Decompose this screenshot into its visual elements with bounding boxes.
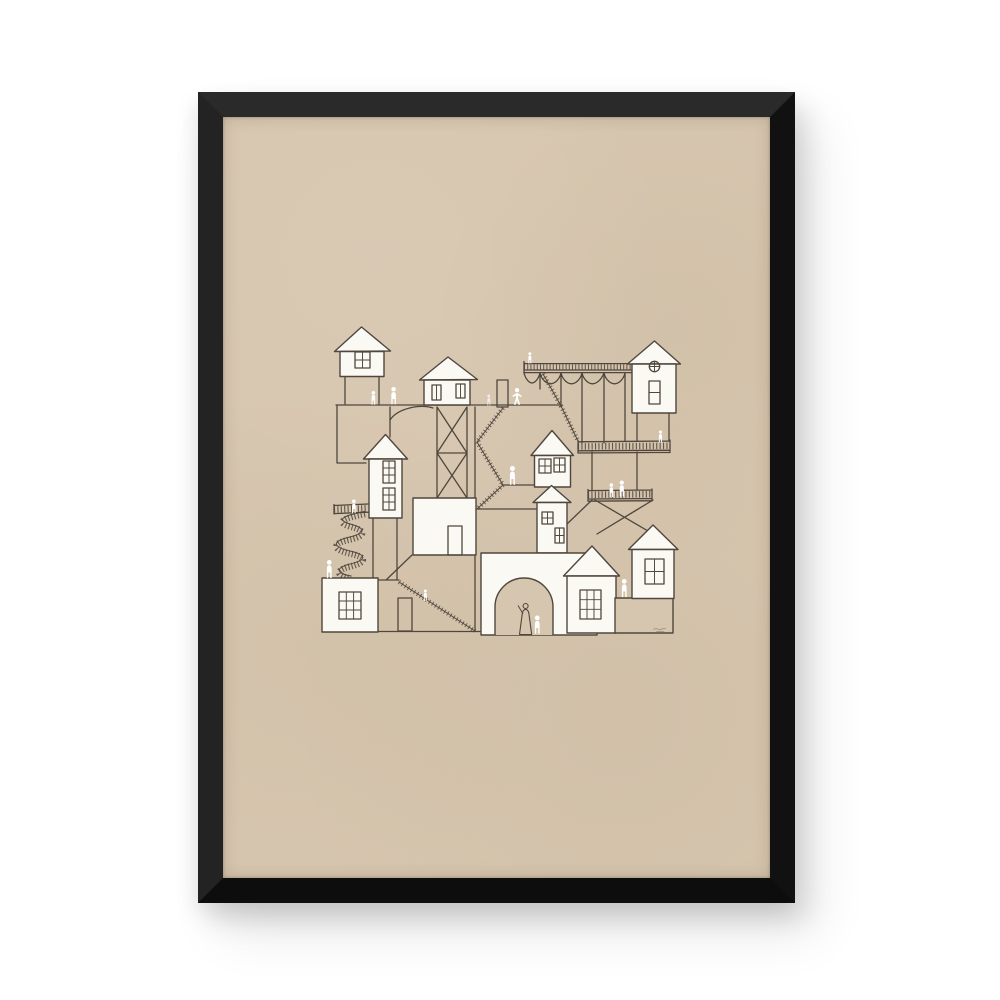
spiral-staircase [336,512,365,579]
poster-print: Framed poster — hand-drawn village of st… [223,117,770,878]
arched-viaduct [524,362,632,444]
figure [622,579,627,597]
square-house-bottom-left [322,578,378,632]
figure [487,395,490,406]
house-top-left-on-stilts [335,327,391,377]
poster-frame: Framed poster — hand-drawn village of st… [198,92,795,903]
village-line-art: Framed poster — hand-drawn village of st… [223,117,770,878]
figure [620,481,624,497]
stacked-house-lower [533,486,571,554]
figure [391,387,396,404]
figure-arms-out [512,388,522,405]
stacked-house-upper [531,431,574,488]
tall-house [364,435,408,519]
figure [327,560,332,578]
figure [352,500,356,514]
standalone-door-upper [497,380,508,407]
figure [372,391,376,405]
standalone-door-lower [398,598,412,631]
house-on-tower [420,357,478,405]
plain-building-with-door [413,498,476,555]
pedestal-wall [615,598,673,633]
figure [610,483,614,497]
round-window [649,361,659,371]
figure [510,466,515,485]
figure [528,352,531,363]
house-round-window [628,341,681,413]
house-on-pedestal [615,525,678,633]
